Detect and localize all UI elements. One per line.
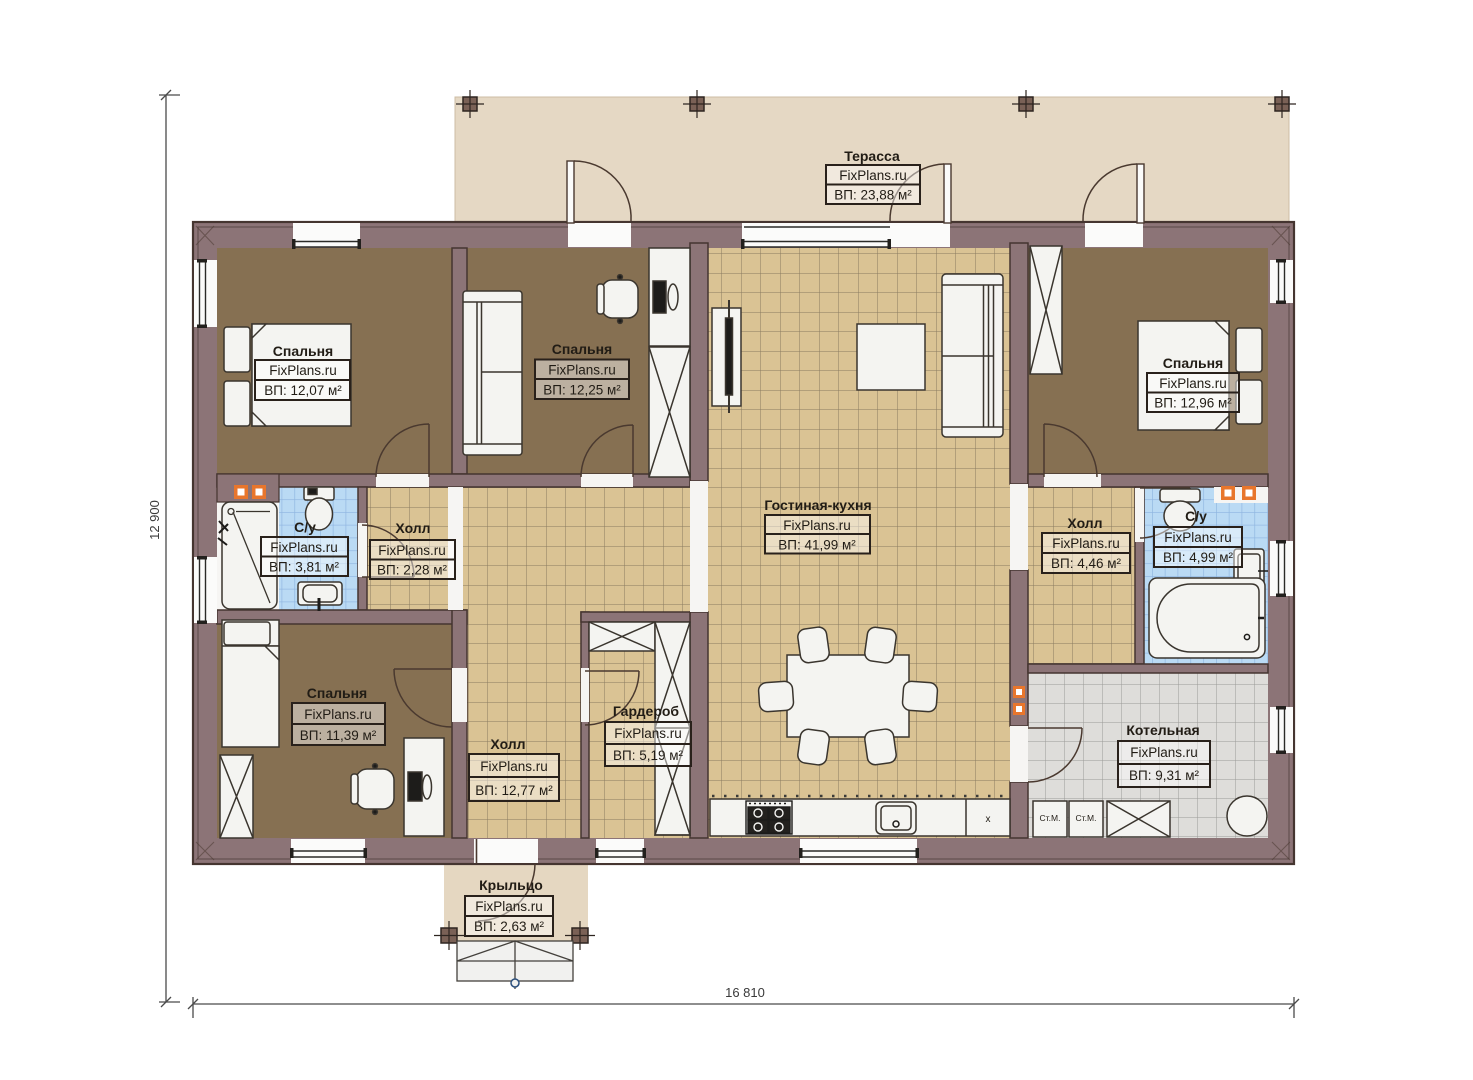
svg-text:FixPlans.ru: FixPlans.ru <box>480 759 548 774</box>
svg-text:С/у: С/у <box>1185 508 1207 524</box>
svg-text:FixPlans.ru: FixPlans.ru <box>1052 536 1120 551</box>
svg-text:Холл: Холл <box>395 520 430 536</box>
svg-text:Крыльцо: Крыльцо <box>479 877 543 893</box>
svg-text:x: x <box>986 814 991 825</box>
svg-text:FixPlans.ru: FixPlans.ru <box>269 363 337 378</box>
svg-text:Спальня: Спальня <box>307 685 367 701</box>
svg-text:FixPlans.ru: FixPlans.ru <box>614 726 682 741</box>
svg-text:FixPlans.ru: FixPlans.ru <box>839 168 907 183</box>
svg-text:Котельная: Котельная <box>1126 722 1199 738</box>
svg-text:ВП: 3,81 м²: ВП: 3,81 м² <box>269 560 340 575</box>
svg-text:Ст.М.: Ст.М. <box>1040 813 1061 823</box>
svg-text:FixPlans.ru: FixPlans.ru <box>304 707 372 722</box>
svg-text:ВП: 2,63 м²: ВП: 2,63 м² <box>474 919 545 934</box>
svg-text:Ст.М.: Ст.М. <box>1076 813 1097 823</box>
svg-text:12 900: 12 900 <box>147 500 162 540</box>
svg-text:ВП: 23,88 м²: ВП: 23,88 м² <box>834 188 912 203</box>
svg-text:ВП: 4,99 м²: ВП: 4,99 м² <box>1163 550 1234 565</box>
svg-text:ВП: 2,28 м²: ВП: 2,28 м² <box>377 563 448 578</box>
svg-text:FixPlans.ru: FixPlans.ru <box>548 363 616 378</box>
svg-text:Спальня: Спальня <box>1163 355 1223 371</box>
svg-text:FixPlans.ru: FixPlans.ru <box>1130 745 1198 760</box>
svg-text:Холл: Холл <box>490 736 525 752</box>
svg-text:ВП: 9,31 м²: ВП: 9,31 м² <box>1129 768 1200 783</box>
svg-text:Гардероб: Гардероб <box>613 703 680 719</box>
svg-text:Спальня: Спальня <box>273 343 333 359</box>
svg-text:ВП: 4,46 м²: ВП: 4,46 м² <box>1051 556 1122 571</box>
svg-text:ВП: 12,96 м²: ВП: 12,96 м² <box>1154 396 1232 411</box>
svg-text:ВП: 12,07 м²: ВП: 12,07 м² <box>264 383 342 398</box>
svg-text:Терасса: Терасса <box>844 148 900 164</box>
svg-text:ВП: 11,39 м²: ВП: 11,39 м² <box>300 728 377 743</box>
svg-text:FixPlans.ru: FixPlans.ru <box>378 543 446 558</box>
svg-text:FixPlans.ru: FixPlans.ru <box>783 518 851 533</box>
svg-text:FixPlans.ru: FixPlans.ru <box>1164 530 1232 545</box>
svg-text:Холл: Холл <box>1067 515 1102 531</box>
svg-text:16 810: 16 810 <box>725 985 765 1000</box>
svg-text:С/у: С/у <box>294 519 316 535</box>
svg-text:FixPlans.ru: FixPlans.ru <box>270 540 338 555</box>
svg-text:FixPlans.ru: FixPlans.ru <box>475 899 543 914</box>
svg-text:Гостиная-кухня: Гостиная-кухня <box>764 497 871 513</box>
svg-text:FixPlans.ru: FixPlans.ru <box>1159 376 1227 391</box>
svg-text:ВП: 5,19 м²: ВП: 5,19 м² <box>613 748 684 763</box>
svg-text:ВП: 12,25 м²: ВП: 12,25 м² <box>543 383 621 398</box>
svg-text:ВП: 12,77 м²: ВП: 12,77 м² <box>475 783 553 798</box>
svg-text:Спальня: Спальня <box>552 341 612 357</box>
svg-text:ВП: 41,99 м²: ВП: 41,99 м² <box>778 538 856 553</box>
